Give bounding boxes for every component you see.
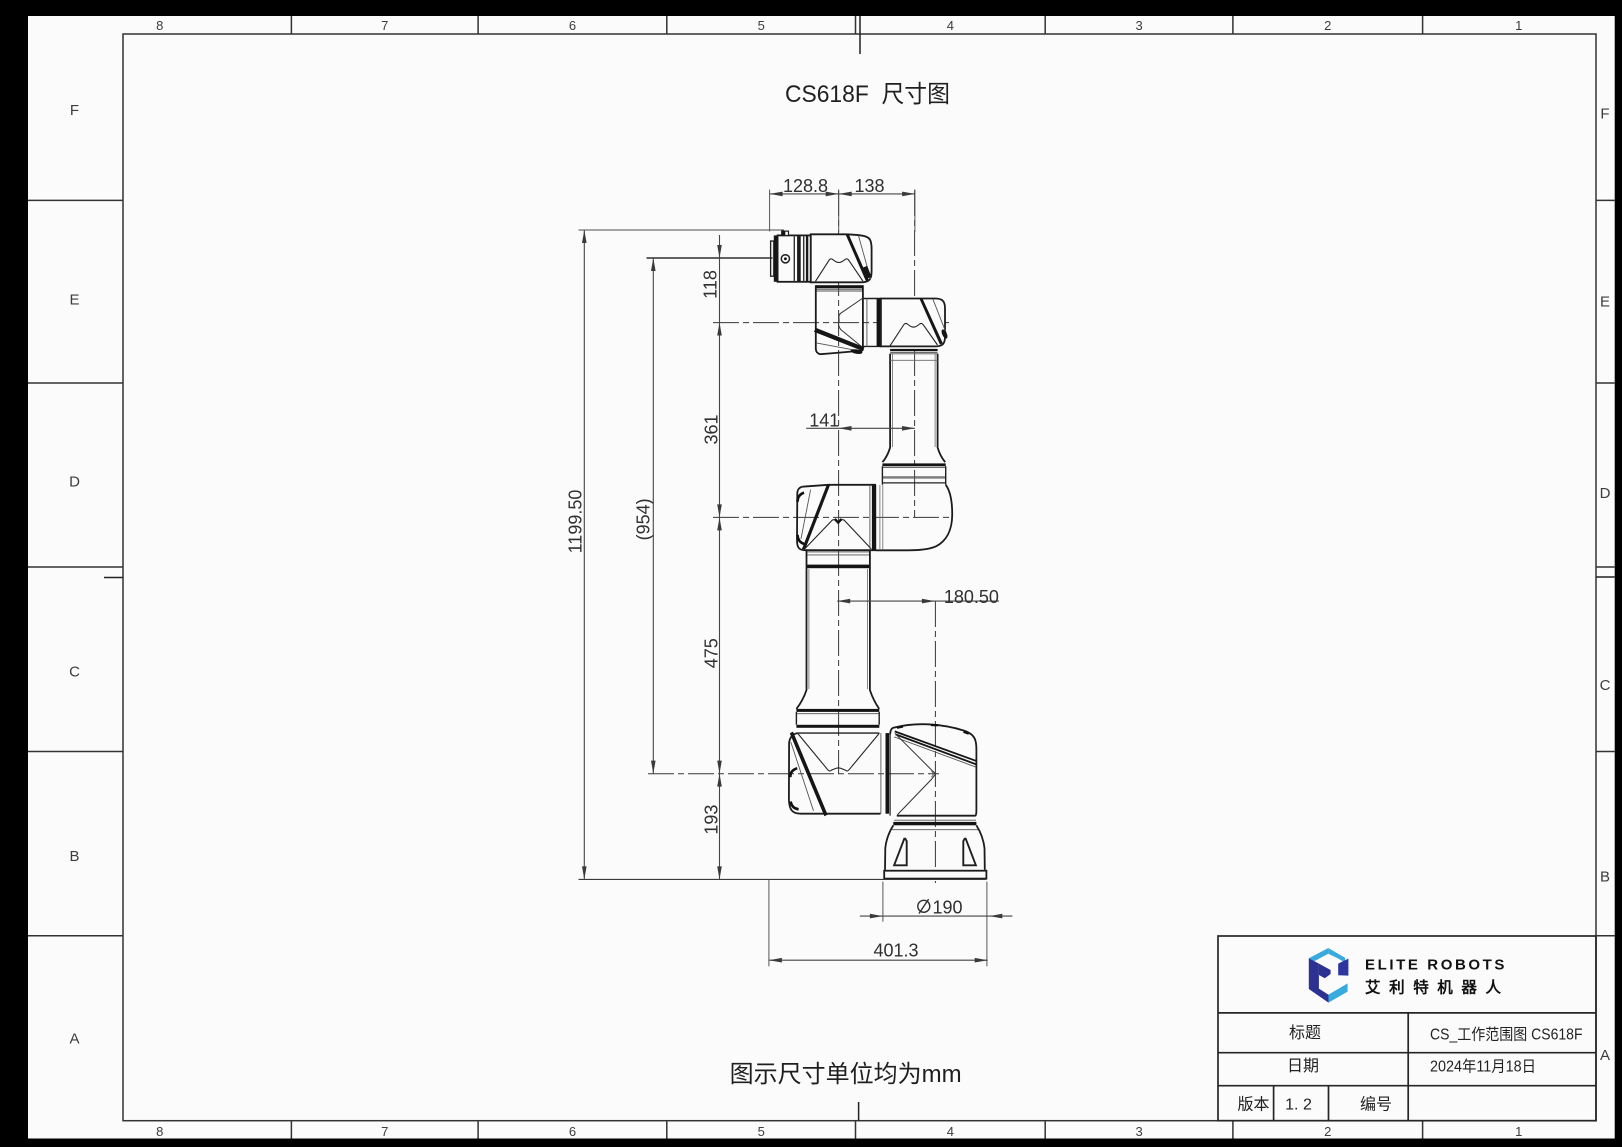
- svg-text:C: C: [1600, 677, 1611, 694]
- svg-text:CS618F 尺寸图: CS618F 尺寸图: [785, 81, 950, 108]
- svg-text:2024年11月18日: 2024年11月18日: [1430, 1058, 1536, 1076]
- svg-text:2: 2: [1324, 1124, 1331, 1139]
- svg-text:标题: 标题: [1289, 1024, 1321, 1042]
- svg-text:F: F: [1600, 106, 1609, 123]
- svg-text:D: D: [69, 473, 80, 490]
- svg-text:3: 3: [1135, 1124, 1142, 1139]
- svg-text:图示尺寸单位均为mm: 图示尺寸单位均为mm: [730, 1061, 962, 1088]
- svg-text:180.50: 180.50: [944, 587, 999, 607]
- svg-text:138: 138: [854, 176, 884, 196]
- svg-text:7: 7: [381, 18, 388, 33]
- svg-text:401.3: 401.3: [873, 940, 918, 960]
- svg-text:4: 4: [947, 1124, 954, 1139]
- svg-text:3: 3: [1135, 18, 1142, 33]
- svg-text:CS_工作范围图 CS618F: CS_工作范围图 CS618F: [1430, 1026, 1583, 1044]
- svg-text:1: 1: [1515, 1124, 1522, 1139]
- svg-text:2: 2: [1324, 18, 1331, 33]
- svg-text:版本: 版本: [1237, 1096, 1269, 1114]
- svg-text:D: D: [1600, 485, 1611, 502]
- svg-text:193: 193: [702, 805, 722, 835]
- svg-text:4: 4: [947, 18, 954, 33]
- svg-text:艾利特机器人: 艾利特机器人: [1365, 978, 1510, 997]
- svg-text:C: C: [69, 664, 80, 681]
- svg-text:141: 141: [809, 410, 839, 430]
- svg-text:8: 8: [156, 18, 163, 33]
- svg-text:A: A: [1600, 1047, 1610, 1064]
- svg-text:日期: 日期: [1287, 1057, 1319, 1075]
- svg-text:8: 8: [156, 1124, 163, 1139]
- svg-text:ELITE ROBOTS: ELITE ROBOTS: [1365, 957, 1507, 974]
- svg-text:5: 5: [758, 1124, 765, 1139]
- svg-text:7: 7: [381, 1124, 388, 1139]
- svg-text:6: 6: [569, 18, 576, 33]
- svg-text:118: 118: [701, 270, 721, 299]
- svg-text:(954): (954): [634, 498, 654, 540]
- svg-text:475: 475: [702, 638, 722, 668]
- svg-text:5: 5: [758, 18, 765, 33]
- svg-text:A: A: [69, 1031, 79, 1048]
- svg-text:1: 1: [1515, 18, 1522, 33]
- svg-text:6: 6: [569, 1124, 576, 1139]
- svg-text:361: 361: [702, 414, 722, 444]
- svg-text:E: E: [1600, 293, 1610, 310]
- svg-text:128.8: 128.8: [783, 176, 828, 196]
- svg-text:1199.50: 1199.50: [566, 490, 586, 554]
- svg-text:190: 190: [932, 898, 962, 918]
- svg-text:编号: 编号: [1360, 1096, 1392, 1114]
- svg-text:1. 2: 1. 2: [1285, 1097, 1312, 1114]
- svg-text:E: E: [69, 292, 79, 309]
- svg-text:B: B: [1600, 868, 1610, 885]
- svg-text:B: B: [69, 848, 79, 865]
- svg-text:F: F: [70, 102, 79, 119]
